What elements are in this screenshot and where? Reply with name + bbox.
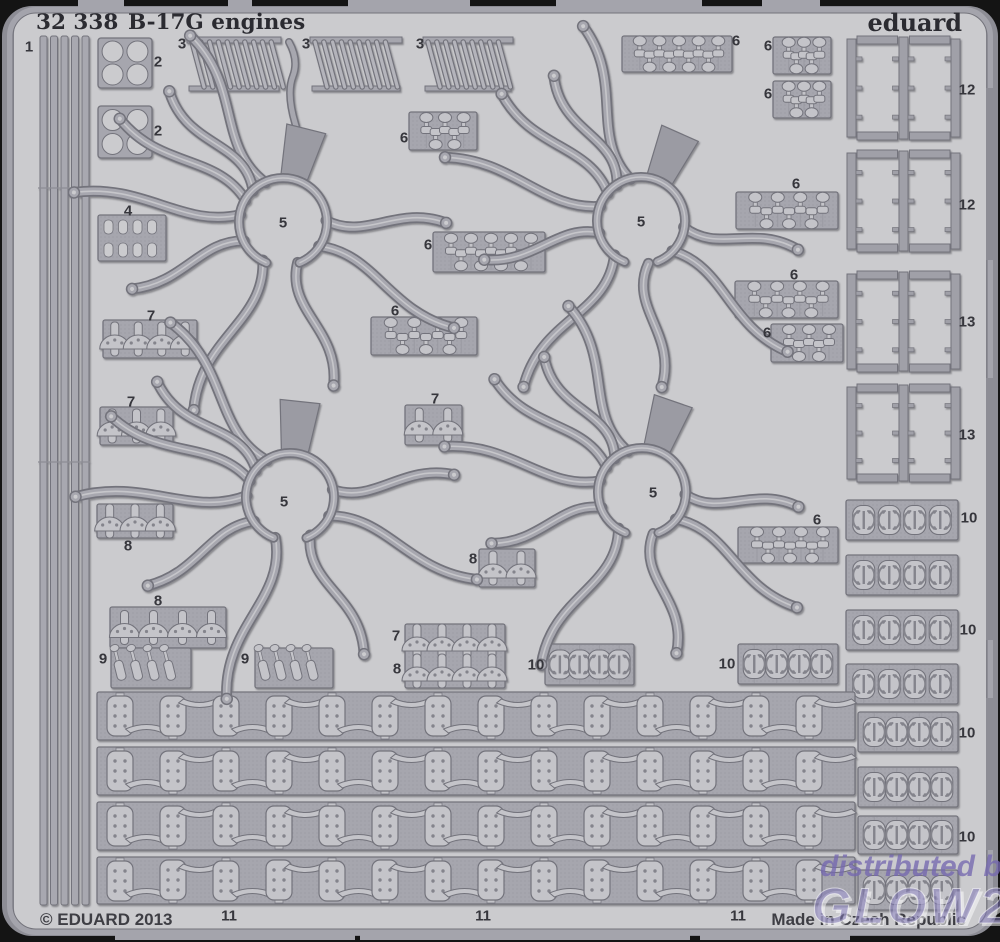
part-number-label: 8 [154,593,162,610]
part-number-label: 13 [959,314,976,331]
part-number-label: 9 [241,651,249,668]
part-number-label: 7 [147,308,155,325]
part-number-label: 10 [719,656,736,673]
part-cluster-6 [371,317,477,355]
part-number-label: 10 [961,510,978,527]
part-number-label: 7 [392,628,400,645]
part-cluster-6 [622,36,732,72]
part-cluster-9 [109,644,191,688]
part-number-label: 6 [400,130,408,147]
part-cluster-6 [773,81,831,118]
part-cluster-6 [735,281,838,318]
part-number-label: 6 [764,86,772,103]
part-number-label: 5 [637,214,645,231]
part-number-label: 6 [813,512,821,529]
part-strips-1 [38,36,90,905]
part-number-label: 6 [732,33,740,50]
part-cluster-8 [110,607,227,648]
part-number-label: 6 [792,176,800,193]
part-number-label: 2 [154,123,162,140]
part-number-label: 6 [424,237,432,254]
part-cluster-10 [846,610,958,650]
part-number-label: 4 [124,203,133,220]
part-cluster-2 [98,38,152,88]
part-number-label: 13 [959,427,976,444]
part-cluster-6 [738,527,838,563]
part-cluster-8 [95,504,176,538]
brand-logo: eduard [868,8,963,37]
part-number-label: 11 [221,908,237,925]
photoetch-sheet: 1223334555566666666667777888899101010101… [0,0,1000,942]
part-number-label: 6 [391,303,399,320]
part-cluster-10 [858,712,958,752]
part-row-11 [97,692,857,740]
part-cluster-10 [858,816,958,854]
part-cluster-7-8 [402,624,507,688]
copyright-text: © EDUARD 2013 [40,910,173,929]
part-cluster-6 [773,37,831,74]
product-photo: 1223334555566666666667777888899101010101… [0,0,1000,942]
part-number-label: 6 [763,325,771,342]
part-cluster-10 [846,500,958,540]
part-number-label: 10 [960,622,977,639]
part-cluster-10 [846,555,958,595]
part-row-11 [97,857,857,904]
watermark-line2: GLOW2B [812,878,1000,934]
part-number-label: 1 [25,39,33,56]
part-number-label: 8 [469,551,477,568]
part-cluster-8 [478,549,536,587]
part-number-label: 5 [280,494,288,511]
part-number-label: 10 [959,829,976,846]
part-cluster-10 [545,644,634,685]
part-cluster-9 [253,644,333,688]
part-number-label: 5 [279,215,287,232]
part-cluster-10 [846,664,958,704]
part-number-label: 8 [393,661,401,678]
part-number-label: 7 [127,394,135,411]
part-number-label: 6 [764,38,772,55]
part-number-label: 5 [649,485,657,502]
product-title: B-17G engines [128,10,305,35]
part-row-11 [97,802,857,850]
part-number-label: 7 [431,391,439,408]
part-number-label: 10 [959,725,976,742]
part-number-label: 11 [730,908,746,925]
part-cluster-10 [738,644,838,684]
part-number-label: 11 [475,908,491,925]
part-number-label: 10 [528,657,545,674]
part-cluster-6 [409,112,477,150]
part-cluster-10 [858,767,958,807]
part-number-label: 12 [959,197,976,214]
part-number-label: 3 [302,36,310,53]
part-number-label: 3 [178,36,186,53]
part-number-label: 8 [124,538,132,555]
part-cluster-6 [736,192,838,229]
part-number-label: 2 [154,54,162,71]
part-number-label: 3 [416,36,424,53]
part-row-11 [97,747,857,795]
part-number-label: 12 [959,82,976,99]
part-cluster-4 [98,215,166,261]
catalog-number: 32 338 [36,10,118,35]
part-cluster-7 [404,405,463,445]
part-number-label: 6 [790,267,798,284]
part-number-label: 9 [99,651,107,668]
distributor-watermark: distributed by GLOW2B GLOW2B [812,850,1000,937]
